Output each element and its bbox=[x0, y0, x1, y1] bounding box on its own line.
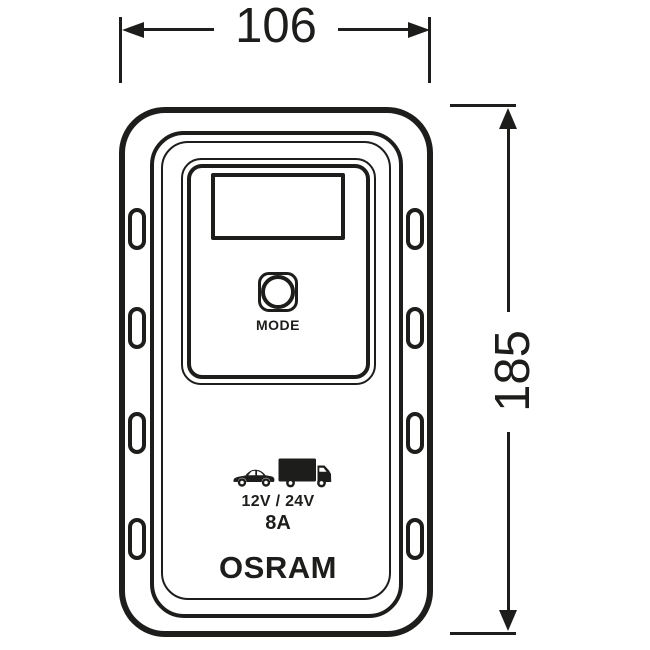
height-dimension-line-upper bbox=[507, 127, 510, 312]
height-dimension-label: 185 bbox=[453, 310, 573, 432]
mode-button-label: MODE bbox=[233, 317, 323, 333]
arrow-up-icon bbox=[499, 108, 517, 129]
arrow-down-icon bbox=[499, 610, 517, 631]
width-dimension-label: 106 bbox=[206, 3, 346, 49]
battery-charger-dimension-drawing: 106 185 MODE bbox=[0, 0, 650, 650]
current-rating-label: 8A bbox=[196, 512, 360, 535]
arrow-right-icon bbox=[408, 22, 430, 38]
brand-logo: OSRAM bbox=[176, 550, 380, 586]
height-extension-line-top bbox=[450, 104, 516, 107]
truck-icon bbox=[278, 458, 332, 488]
mode-button-circle-icon bbox=[261, 275, 295, 309]
display-screen bbox=[211, 173, 345, 240]
width-dimension-line-right bbox=[338, 28, 408, 31]
mode-button bbox=[258, 272, 298, 312]
voltage-rating-label: 12V / 24V bbox=[196, 493, 360, 511]
car-icon bbox=[231, 465, 276, 488]
height-dimension-line-lower bbox=[507, 432, 510, 612]
height-extension-line-bottom bbox=[450, 632, 516, 635]
arrow-left-icon bbox=[122, 22, 144, 38]
width-dimension-line-left bbox=[142, 28, 214, 31]
